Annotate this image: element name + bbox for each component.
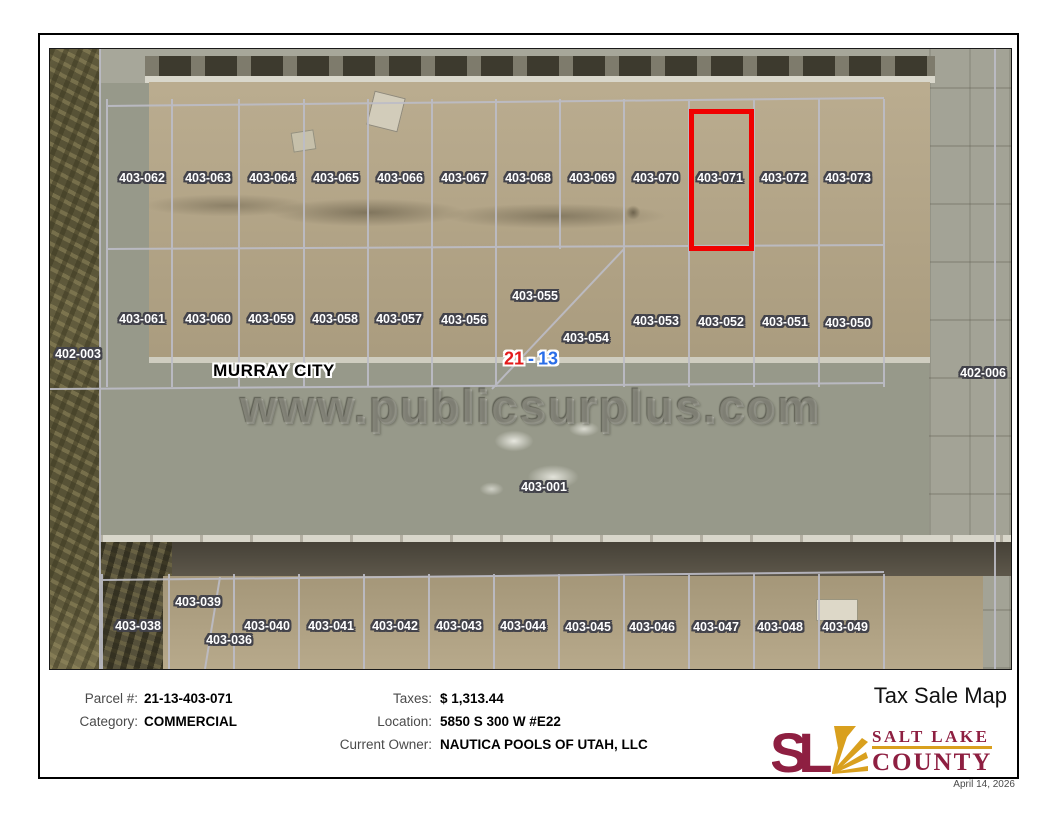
sl-monogram-icon: SL xyxy=(772,726,868,776)
section-township-label: 21-13 xyxy=(504,349,558,370)
parcel-label-403-072: 403-072 xyxy=(761,171,807,185)
parcel-label-403-050: 403-050 xyxy=(825,316,871,330)
parcel-label-403-041: 403-041 xyxy=(308,619,354,633)
parcel-label-403-057: 403-057 xyxy=(376,312,422,326)
parcel-label-403-064: 403-064 xyxy=(249,171,295,185)
parcel-label-403-048: 403-048 xyxy=(757,620,803,634)
current-owner-label: Current Owner: xyxy=(320,737,432,752)
parcel-label-403-073: 403-073 xyxy=(825,171,871,185)
parcel-label-403-062: 403-062 xyxy=(119,171,165,185)
parcel-label-403-058: 403-058 xyxy=(312,312,358,326)
parcel-label-403-046: 403-046 xyxy=(629,620,675,634)
parcel-label-403-040: 403-040 xyxy=(244,619,290,633)
taxes-value: $ 1,313.44 xyxy=(440,691,504,706)
parcel-label-403-049: 403-049 xyxy=(822,620,868,634)
section-separator: - xyxy=(528,349,534,369)
parcel-label-403-054: 403-054 xyxy=(563,331,609,345)
section-book: 21 xyxy=(504,349,524,369)
location-label: Location: xyxy=(320,714,432,729)
section-page: 13 xyxy=(538,349,558,369)
parcel-label-403-061: 403-061 xyxy=(119,312,165,326)
parcel-label-403-068: 403-068 xyxy=(505,171,551,185)
taxes-label: Taxes: xyxy=(320,691,432,706)
svg-text:SL: SL xyxy=(772,726,831,776)
parcel-number-label: Parcel #: xyxy=(60,691,138,706)
print-date: April 14, 2026 xyxy=(953,779,1015,790)
parcel-label-403-047: 403-047 xyxy=(693,620,739,634)
category-value: COMMERCIAL xyxy=(144,714,237,729)
parcel-label-403-065: 403-065 xyxy=(313,171,359,185)
parcel-label-403-045: 403-045 xyxy=(565,620,611,634)
parcel-number-value: 21-13-403-071 xyxy=(144,691,233,706)
salt-lake-county-logo: SL SALT LAKE COUNTY xyxy=(772,726,1010,776)
logo-line2: COUNTY xyxy=(872,750,992,775)
parcel-label-403-001: 403-001 xyxy=(521,480,567,494)
parcel-label-403-043: 403-043 xyxy=(436,619,482,633)
parcel-label-403-052: 403-052 xyxy=(698,315,744,329)
parcel-label-403-071: 403-071 xyxy=(697,171,743,185)
parcel-label-402-003: 402-003 xyxy=(55,347,101,361)
category-label: Category: xyxy=(60,714,138,729)
parcel-label-403-059: 403-059 xyxy=(248,312,294,326)
parcel-label-402-006: 402-006 xyxy=(960,366,1006,380)
parcel-label-403-066: 403-066 xyxy=(377,171,423,185)
document-frame: www.publicsurplus.com xyxy=(38,33,1019,779)
logo-line1: SALT LAKE xyxy=(872,728,992,749)
parcel-label-403-067: 403-067 xyxy=(441,171,487,185)
parcel-label-403-069: 403-069 xyxy=(569,171,615,185)
parcel-label-403-051: 403-051 xyxy=(762,315,808,329)
tax-sale-map-page: www.publicsurplus.com xyxy=(0,0,1056,816)
parcel-label-403-039: 403-039 xyxy=(175,595,221,609)
city-label: MURRAY CITY xyxy=(213,361,335,381)
parcel-label-403-053: 403-053 xyxy=(633,314,679,328)
logo-text: SALT LAKE COUNTY xyxy=(872,728,992,775)
current-owner-value: NAUTICA POOLS OF UTAH, LLC xyxy=(440,737,648,752)
parcel-label-403-042: 403-042 xyxy=(372,619,418,633)
parcel-label-403-063: 403-063 xyxy=(185,171,231,185)
parcel-label-403-038: 403-038 xyxy=(115,619,161,633)
location-value: 5850 S 300 W #E22 xyxy=(440,714,561,729)
parcel-label-403-055: 403-055 xyxy=(512,289,558,303)
parcel-label-403-070: 403-070 xyxy=(633,171,679,185)
parcel-label-403-056: 403-056 xyxy=(441,313,487,327)
parcel-label-403-060: 403-060 xyxy=(185,312,231,326)
aerial-parcel-map: www.publicsurplus.com xyxy=(49,48,1012,670)
parcel-label-403-036: 403-036 xyxy=(206,633,252,647)
page-title: Tax Sale Map xyxy=(874,683,1007,709)
parcel-label-403-044: 403-044 xyxy=(500,619,546,633)
